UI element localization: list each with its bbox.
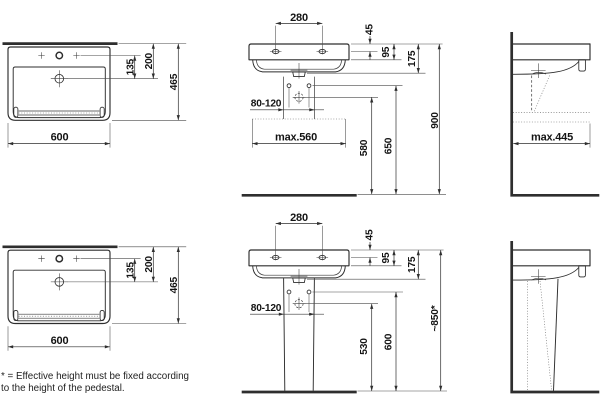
side-view-top: max.445 [512, 32, 600, 195]
fixing-bolt-left [287, 290, 291, 294]
bowl-underside [513, 268, 579, 281]
dim-overall-height: ~850* [430, 305, 441, 331]
drain-centerlines [51, 70, 68, 87]
dim-basin-height: 175 [407, 50, 418, 67]
dim-drain-from-wall: 200 [144, 52, 155, 69]
dim-width: 600 [51, 132, 69, 144]
dim-overall-height: 900 [430, 112, 441, 129]
front-lip [579, 266, 586, 277]
basin-rim [249, 250, 349, 266]
footnote-line-1: * = Effective height must be fixed accor… [1, 371, 241, 383]
dim-bolt-height: 650 [383, 137, 394, 154]
technical-drawing-sheet: 600 465 135 200 [0, 0, 600, 408]
dim-max-width: max.560 [275, 132, 317, 144]
dim-tap-spacing: 280 [290, 212, 308, 224]
dim-bolt-height: 600 [383, 333, 394, 350]
dim-edge-to-tap: 45 [364, 229, 375, 240]
dim-depth: 465 [169, 276, 180, 293]
dim-drain-from-wall: 200 [144, 256, 155, 273]
basin-rim [249, 44, 349, 60]
dim-rim-height: 95 [381, 46, 392, 57]
overflow-slot [19, 111, 100, 115]
fixing-bolt-right [307, 290, 311, 294]
dim-drain-offset: 135 [125, 58, 136, 75]
footnote: * = Effective height must be fixed accor… [1, 371, 241, 395]
dim-drain-offset: 135 [125, 262, 136, 279]
dim-edge-to-tap: 45 [364, 24, 375, 35]
dim-bolt-spacing: 80-120 [251, 303, 282, 314]
tap-hole-marks [38, 52, 79, 58]
plan-view-bottom: 600 465 135 200 [3, 247, 187, 351]
dim-rim-height: 95 [381, 252, 392, 263]
wall-floor-line [512, 32, 600, 195]
fixing-bolt-right [307, 84, 311, 88]
tap-hole [56, 256, 62, 262]
dim-width: 600 [51, 335, 69, 347]
overflow-slot [19, 314, 100, 318]
washbasin-dimension-drawing: 600 465 135 200 [0, 0, 600, 408]
front-lip [579, 60, 586, 71]
dim-max-depth: max.445 [531, 132, 573, 144]
dim-siphon-height: 580 [359, 139, 370, 156]
wall-floor-line [512, 241, 600, 392]
dim-bolt-spacing: 80-120 [251, 99, 282, 110]
fixing-bolt-left [287, 84, 291, 88]
pedestal-front [554, 279, 559, 391]
dim-tap-spacing: 280 [290, 12, 308, 24]
side-view-bottom [512, 241, 600, 392]
tap-hole [56, 52, 62, 58]
plan-view-top: 600 465 135 200 [3, 44, 187, 148]
front-view-top: 280 80-120 max.560 45 95 175 580 650 900 [242, 12, 446, 196]
pedestal [284, 278, 315, 391]
dim-basin-height: 175 [407, 256, 418, 273]
dim-depth: 465 [169, 73, 180, 90]
bowl-underside [513, 62, 579, 75]
dim-siphon-height: 530 [359, 338, 370, 355]
front-view-bottom: 280 80-120 45 95 175 530 600 ~850* [242, 212, 447, 392]
footnote-line-2: to the height of the pedestal. [1, 383, 241, 395]
